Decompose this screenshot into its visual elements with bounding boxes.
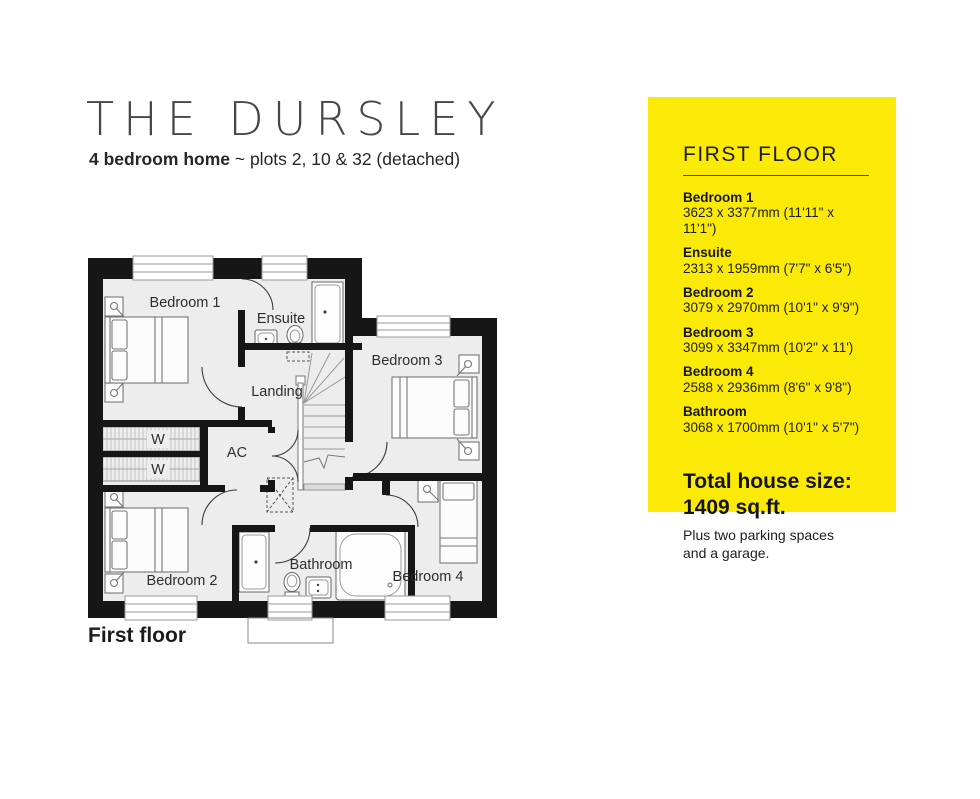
label-landing: Landing bbox=[251, 384, 303, 400]
window-bedroom4-bottom bbox=[385, 596, 450, 620]
room-dims: 3079 x 2970mm (10'1" x 9'9") bbox=[683, 300, 866, 315]
label-wardrobe-2: W bbox=[151, 462, 165, 478]
total-value: 1409 sq.ft. bbox=[683, 495, 866, 521]
room-name: Bathroom bbox=[683, 404, 866, 419]
label-bedroom3: Bedroom 3 bbox=[372, 353, 443, 369]
room-dims: 2313 x 1959mm (7'7" x 6'5") bbox=[683, 261, 866, 276]
label-wardrobe-1: W bbox=[151, 432, 165, 448]
flyer-page: THE DURSLEY 4 bedroom home ~ plots 2, 10… bbox=[0, 0, 980, 799]
window-bedroom1-top bbox=[133, 256, 213, 280]
label-ensuite: Ensuite bbox=[257, 311, 305, 327]
label-bathroom: Bathroom bbox=[290, 557, 353, 573]
room-entry: Bedroom 2 3079 x 2970mm (10'1" x 9'9") bbox=[683, 285, 866, 316]
porch-outline bbox=[248, 618, 333, 643]
room-name: Bedroom 4 bbox=[683, 364, 866, 379]
window-bedroom2-bottom bbox=[125, 596, 197, 620]
label-bedroom4: Bedroom 4 bbox=[393, 569, 464, 585]
room-dims: 3623 x 3377mm (11'11" x 11'1") bbox=[683, 205, 866, 236]
room-list: Bedroom 1 3623 x 3377mm (11'11" x 11'1")… bbox=[683, 190, 866, 435]
room-name: Bedroom 3 bbox=[683, 325, 866, 340]
room-entry: Bedroom 3 3099 x 3347mm (10'2" x 11') bbox=[683, 325, 866, 356]
room-dims: 3099 x 3347mm (10'2" x 11') bbox=[683, 340, 866, 355]
label-bedroom2: Bedroom 2 bbox=[147, 573, 218, 589]
bathroom-sink-icon bbox=[306, 577, 331, 598]
room-name: Bedroom 1 bbox=[683, 190, 866, 205]
window-ensuite-top bbox=[262, 256, 307, 280]
panel-heading: FIRST FLOOR bbox=[683, 143, 866, 167]
room-name: Ensuite bbox=[683, 245, 866, 260]
window-bedroom3-top bbox=[377, 316, 450, 337]
ensuite-shower-icon bbox=[312, 282, 343, 346]
subtitle: 4 bedroom home ~ plots 2, 10 & 32 (detac… bbox=[89, 149, 460, 170]
subtitle-bold: 4 bedroom home bbox=[89, 149, 230, 169]
label-bedroom1: Bedroom 1 bbox=[150, 295, 221, 311]
parking-note: Plus two parking spaces and a garage. bbox=[683, 527, 866, 562]
bathroom-shower-icon bbox=[239, 532, 269, 592]
label-ac: AC bbox=[227, 445, 247, 461]
panel-divider bbox=[683, 175, 869, 176]
room-entry: Bathroom 3068 x 1700mm (10'1" x 5'7") bbox=[683, 404, 866, 435]
subtitle-rest: ~ plots 2, 10 & 32 (detached) bbox=[230, 149, 460, 169]
room-dims: 2588 x 2936mm (8'6" x 9'8") bbox=[683, 380, 866, 395]
page-title: THE DURSLEY bbox=[86, 92, 504, 146]
total-label: Total house size: bbox=[683, 469, 866, 495]
info-panel: FIRST FLOOR Bedroom 1 3623 x 3377mm (11'… bbox=[648, 97, 896, 512]
plan-caption: First floor bbox=[88, 624, 186, 648]
total-house-size: Total house size: 1409 sq.ft. bbox=[683, 469, 866, 522]
window-bathroom-bottom bbox=[268, 596, 312, 620]
room-name: Bedroom 2 bbox=[683, 285, 866, 300]
room-entry: Bedroom 4 2588 x 2936mm (8'6" x 9'8") bbox=[683, 364, 866, 395]
room-entry: Ensuite 2313 x 1959mm (7'7" x 6'5") bbox=[683, 245, 866, 276]
room-dims: 3068 x 1700mm (10'1" x 5'7") bbox=[683, 420, 866, 435]
bathroom-toilet-icon bbox=[284, 573, 300, 599]
room-entry: Bedroom 1 3623 x 3377mm (11'11" x 11'1") bbox=[683, 190, 866, 236]
floor-plan: Bedroom 1 Ensuite Bedroom 3 Landing W W … bbox=[85, 255, 500, 655]
